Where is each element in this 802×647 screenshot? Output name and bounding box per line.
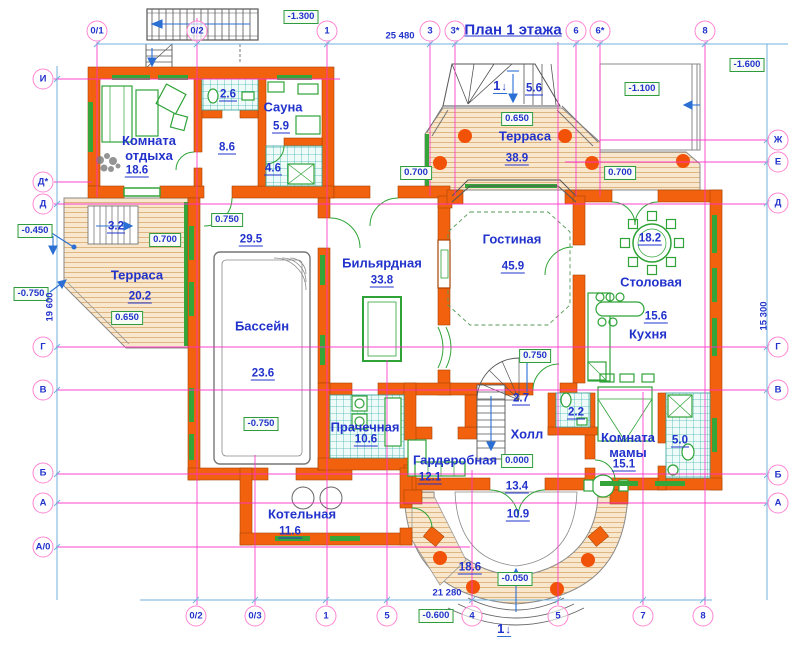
elevation-mark: -0.750 (14, 287, 49, 301)
axis-marker-bottom: 7 (633, 606, 654, 627)
room-area-label: 18.2 (638, 233, 662, 246)
dimension-left: 19 600 (45, 292, 56, 321)
elevation-mark: 0.000 (501, 454, 533, 468)
room-name-label: Котельная (268, 507, 336, 522)
axis-marker-bottom: 0/3 (245, 606, 266, 627)
dimension-right: 15 300 (759, 301, 770, 330)
room-name-label: Столовая (620, 275, 682, 290)
room-name-line: Гардеробная (413, 453, 497, 468)
axis-marker-left: Д (33, 194, 54, 215)
section-arrow-icon (500, 78, 507, 93)
axis-marker-right: Г (768, 337, 789, 358)
room-area-label: 15.6 (644, 311, 668, 324)
axis-marker-right: Д (768, 193, 789, 214)
axis-marker-right: А (768, 493, 789, 514)
elevation-mark: -1.600 (730, 58, 765, 72)
axis-marker-left: Б (33, 463, 54, 484)
small-area-label: 5.6 (525, 83, 543, 96)
axis-marker-bottom: 4 (462, 606, 483, 627)
axis-marker-bottom: 5 (548, 606, 569, 627)
room-name-label: Комнатаотдыха (122, 133, 176, 163)
elevation-mark: 0.650 (501, 112, 533, 126)
axis-marker-right: Ж (768, 130, 789, 151)
axis-marker-bottom: 8 (693, 606, 714, 627)
room-name-line: Холл (511, 427, 544, 442)
axis-marker-right: В (768, 380, 789, 401)
axis-marker-bottom: 0/2 (186, 606, 207, 627)
dimension-bottom: 21 280 (432, 588, 461, 599)
elevation-mark: 0.700 (400, 166, 432, 180)
axis-marker-top: 0/2 (187, 21, 208, 42)
axis-marker-right: Е (768, 152, 789, 173)
elevation-mark: -0.050 (498, 572, 533, 586)
room-name-line: Комната (122, 133, 176, 148)
axis-marker-left: Г (33, 337, 54, 358)
room-area-label: 11.6 (278, 526, 302, 539)
elevation-mark: -0.750 (244, 417, 279, 431)
small-area-label: 3.2 (107, 221, 125, 234)
axis-marker-bottom: 5 (377, 606, 398, 627)
small-area-label: 10.9 (506, 509, 530, 522)
room-area-label: 5.9 (272, 121, 290, 134)
axis-marker-bottom: 1 (316, 606, 337, 627)
small-area-label: 29.5 (239, 234, 263, 247)
room-name-line: Прачечная (331, 420, 400, 435)
axis-marker-top: 6* (590, 21, 611, 42)
plan-title: План 1 этажа (464, 22, 561, 39)
elevation-mark: 0.750 (211, 213, 243, 227)
axis-marker-top: 1 (317, 21, 338, 42)
labels-layer: План 1 этажаКомнатаотдыха18.6Сауна5.9Тер… (0, 0, 802, 647)
floor-plan-page: План 1 этажаКомнатаотдыха18.6Сауна5.9Тер… (0, 0, 802, 647)
axis-marker-left: В (33, 380, 54, 401)
room-area-label: 12.1 (418, 472, 442, 485)
axis-marker-top: 8 (695, 21, 716, 42)
room-name-line: Терраса (499, 129, 551, 144)
room-name-line: Столовая (620, 275, 682, 290)
elevation-mark: 0.700 (149, 233, 181, 247)
room-area-label: 13.4 (505, 481, 529, 494)
room-name-line: Бильярдная (342, 256, 422, 271)
room-area-label: 38.9 (505, 153, 529, 166)
room-name-label: Бильярдная (342, 256, 422, 271)
elevation-mark: -0.450 (18, 224, 53, 238)
axis-marker-top: 0/1 (87, 21, 108, 42)
room-name-line: Кухня (629, 327, 667, 342)
room-name-label: Бассейн (235, 319, 289, 334)
axis-marker-left: А (33, 493, 54, 514)
axis-marker-left: Д* (33, 172, 54, 193)
small-area-label: 2.7 (512, 393, 530, 406)
room-area-label: 45.9 (501, 261, 525, 274)
elevation-mark: -1.100 (625, 82, 660, 96)
elevation-mark: 0.750 (519, 349, 551, 363)
room-name-line: Гостиная (483, 232, 542, 247)
room-name-line: Терраса (111, 268, 163, 283)
dimension-top: 25 480 (385, 31, 414, 42)
room-name-line: Сауна (263, 100, 302, 115)
section-arrow-icon (504, 621, 511, 636)
room-area-label: 23.6 (251, 368, 275, 381)
room-name-line: отдыха (122, 148, 176, 163)
room-area-label: 18.6 (125, 165, 149, 178)
room-name-line: Котельная (268, 507, 336, 522)
room-area-label: 15.1 (612, 459, 636, 472)
axis-marker-left: А/0 (33, 537, 54, 558)
small-area-label: 4.6 (264, 163, 282, 176)
elevation-mark: 0.700 (604, 166, 636, 180)
room-name-label: Кухня (629, 327, 667, 342)
room-name-label: Холл (511, 427, 544, 442)
elevation-mark: 0.650 (111, 311, 143, 325)
room-name-label: Прачечная (331, 420, 400, 435)
small-area-label: 2.2 (567, 407, 585, 420)
room-area-label: 33.8 (370, 275, 394, 288)
axis-marker-left: И (33, 69, 54, 90)
elevation-mark: -0.600 (419, 609, 454, 623)
room-name-label: Терраса (499, 129, 551, 144)
elevation-mark: -1.300 (284, 10, 319, 24)
room-name-line: Бассейн (235, 319, 289, 334)
room-name-label: Гардеробная (413, 453, 497, 468)
small-area-label: 2.6 (219, 89, 237, 102)
room-name-label: Терраса (111, 268, 163, 283)
axis-marker-top: 3* (445, 21, 466, 42)
section-mark: 1 (493, 78, 507, 94)
room-area-label: 10.6 (354, 434, 378, 447)
room-name-label: Комнатамамы (601, 430, 655, 460)
small-area-label: 8.6 (218, 142, 236, 155)
section-mark: 1 (497, 621, 511, 637)
small-area-label: 5.0 (671, 435, 689, 448)
small-area-label: 18.6 (458, 562, 482, 575)
axis-marker-right: Б (768, 465, 789, 486)
room-name-label: Гостиная (483, 232, 542, 247)
room-name-label: Сауна (263, 100, 302, 115)
axis-marker-top: 6 (566, 21, 587, 42)
room-name-line: Комната (601, 430, 655, 445)
room-area-label: 20.2 (128, 291, 152, 304)
axis-marker-top: 3 (420, 21, 441, 42)
